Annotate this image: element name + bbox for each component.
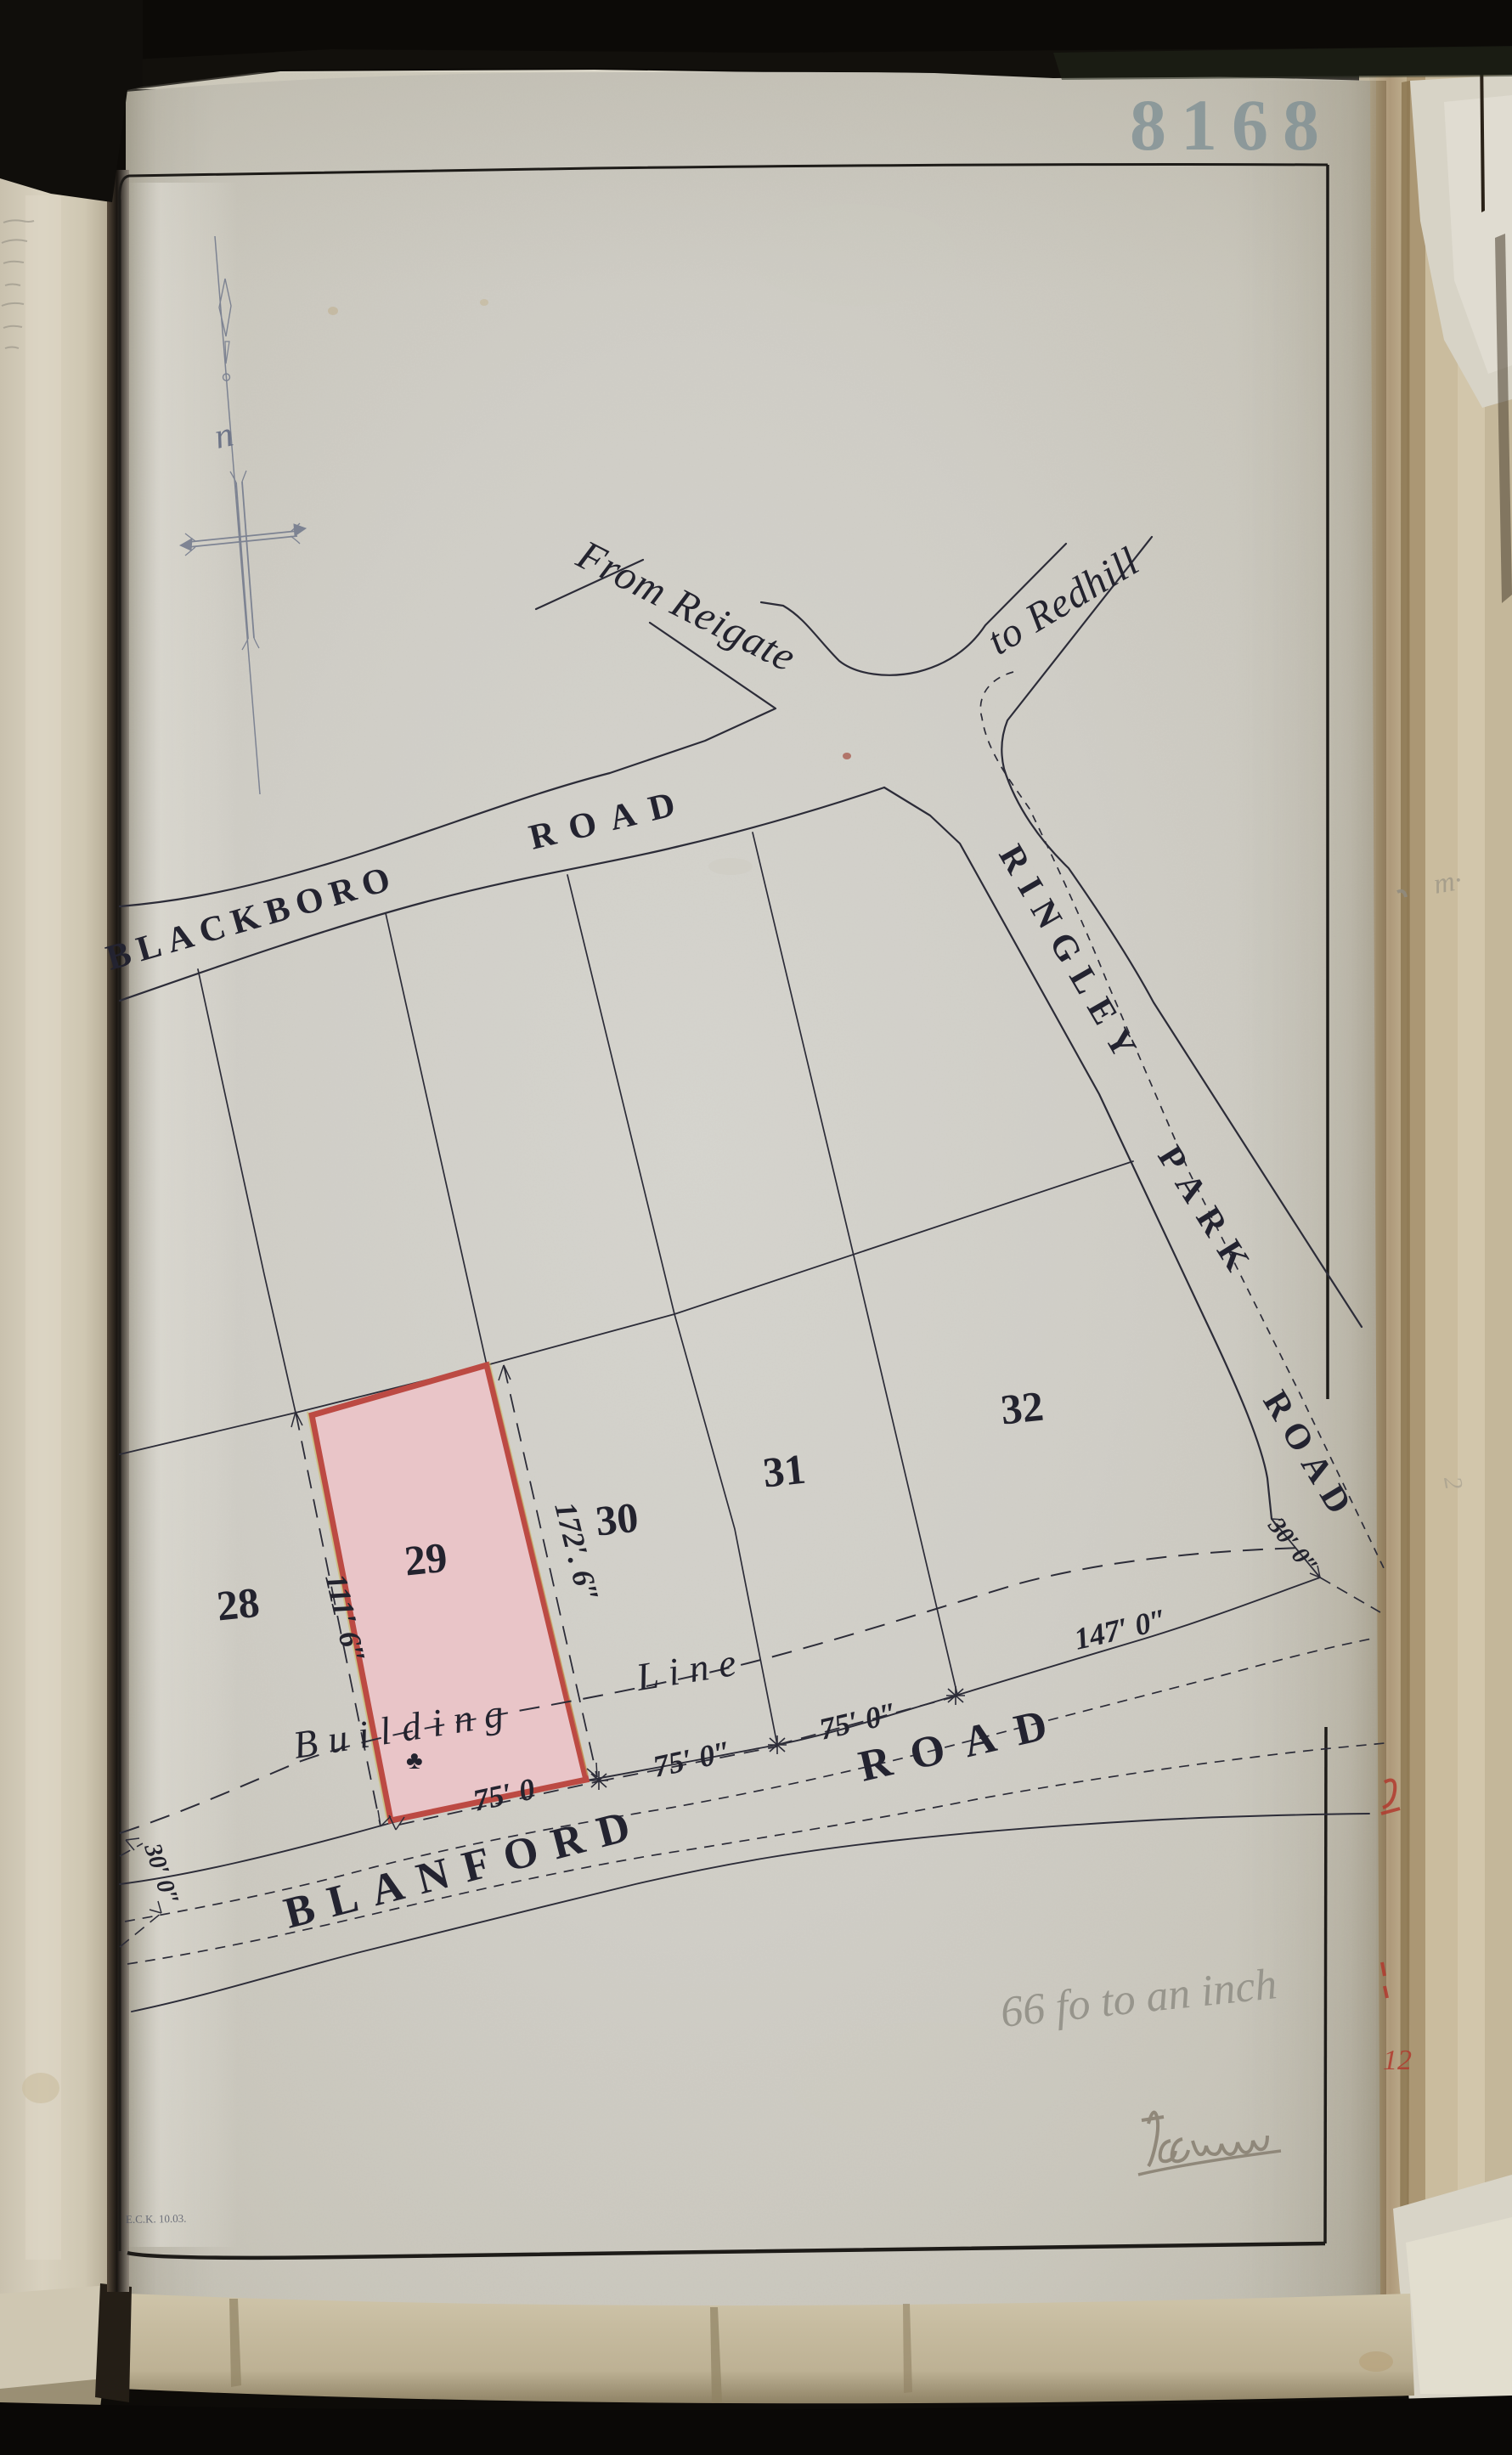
svg-text:8168: 8168 <box>1130 84 1334 166</box>
svg-text:30: 30 <box>593 1493 640 1545</box>
svg-text:♣: ♣ <box>406 1747 423 1775</box>
svg-text:E.C.K. 10.03.: E.C.K. 10.03. <box>126 2212 187 2226</box>
svg-text:12: 12 <box>1383 2045 1412 2076</box>
svg-text:32: 32 <box>998 1382 1046 1434</box>
svg-text:29: 29 <box>402 1533 449 1585</box>
svg-text:31: 31 <box>760 1445 808 1497</box>
svg-text:28: 28 <box>214 1578 262 1630</box>
svg-text:m·: m· <box>1431 865 1464 900</box>
